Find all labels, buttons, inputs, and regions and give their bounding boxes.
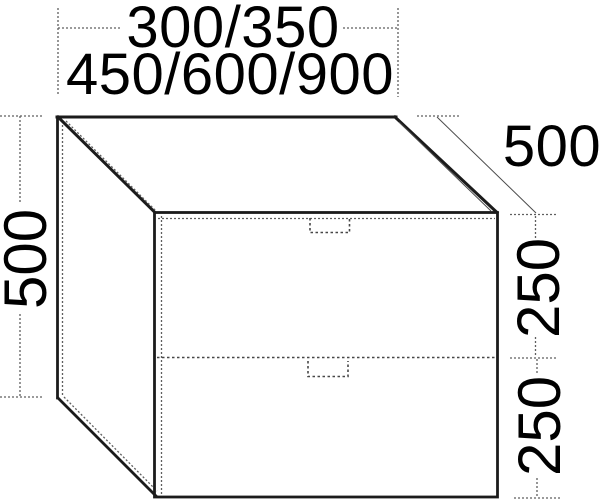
front-face xyxy=(155,213,498,498)
top-right-edge-inner xyxy=(399,122,491,211)
cabinet-dimension-drawing: 300/350 450/600/900 500 500 250 250 xyxy=(0,0,614,504)
bottom-left-edge-inner xyxy=(64,397,157,491)
cabinet xyxy=(57,117,498,497)
depth-label: 500 xyxy=(503,114,601,179)
dimension-diagram: 300/350 450/600/900 500 500 250 250 xyxy=(0,0,614,504)
drawer2-handle xyxy=(308,361,348,377)
drawer-height-dimensions: 250 250 xyxy=(505,216,573,498)
top-left-edge xyxy=(58,117,155,213)
lower-drawer-height-label: 250 xyxy=(506,376,573,476)
width-options-line2: 450/600/900 xyxy=(66,42,394,107)
top-left-edge-inner xyxy=(66,121,156,211)
height-dimension: 500 xyxy=(0,116,59,397)
upper-drawer-height-label: 250 xyxy=(505,238,572,338)
top-right-edge xyxy=(395,117,497,213)
height-label: 500 xyxy=(0,209,59,309)
drawer1-handle xyxy=(310,218,350,233)
bottom-left-edge xyxy=(58,398,156,496)
width-dimension: 300/350 450/600/900 xyxy=(58,0,398,107)
